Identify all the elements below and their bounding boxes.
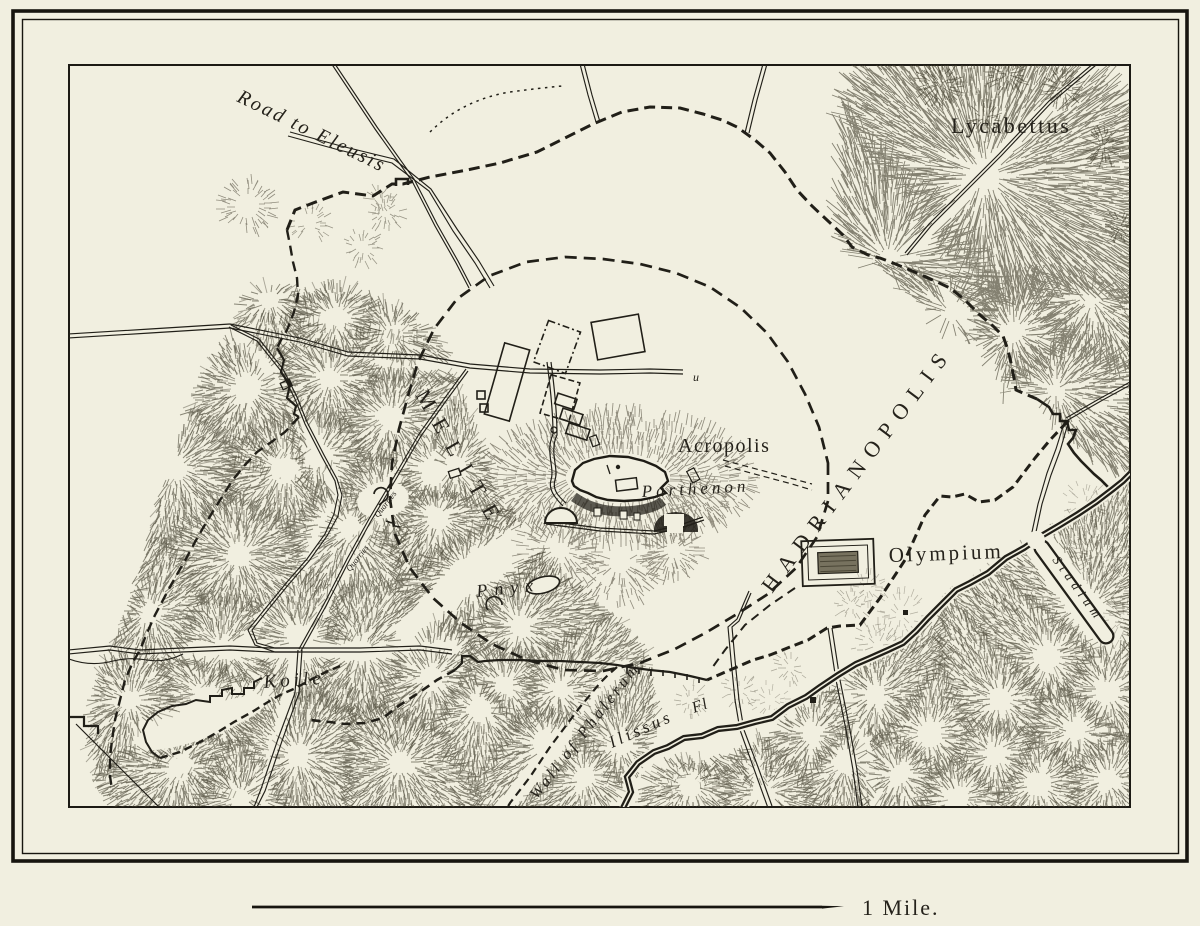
svg-text:Lycabettus: Lycabettus xyxy=(951,113,1071,138)
svg-text:Olympium: Olympium xyxy=(888,539,1004,567)
svg-text:Acropolis: Acropolis xyxy=(678,435,770,457)
svg-text:Koile: Koile xyxy=(262,668,325,693)
svg-text:1 Mile.: 1 Mile. xyxy=(862,895,940,920)
svg-text:u: u xyxy=(693,370,699,384)
